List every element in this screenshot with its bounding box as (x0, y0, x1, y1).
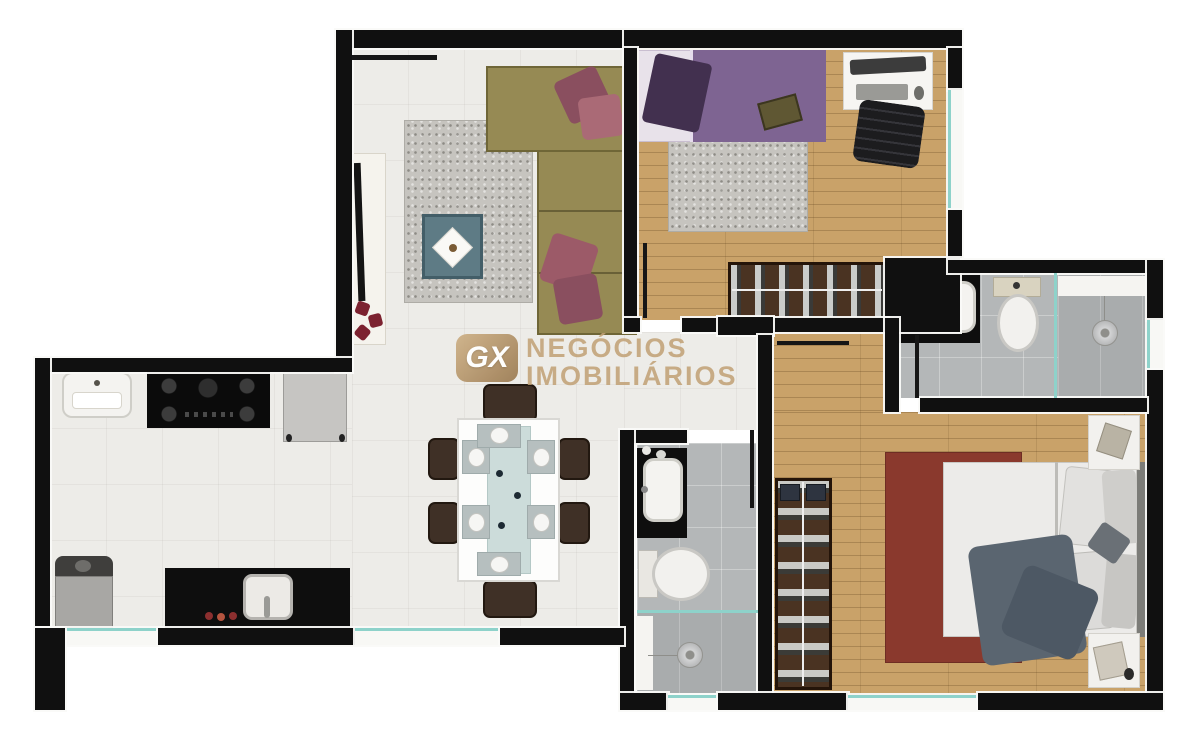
brand-name: NEGÓCIOS IMOBILIÁRIOS (526, 334, 738, 390)
wall-stub-bottom-left (35, 628, 65, 710)
dining-chair (428, 438, 460, 480)
cabinet-foot (339, 434, 345, 442)
wardrobe2-box (780, 484, 800, 501)
shower2-hose (648, 655, 680, 656)
bathroom2-door-leaf (750, 430, 754, 508)
bathroom2-sink (643, 458, 683, 522)
shower1-drain (1092, 320, 1118, 346)
wall-bedroom1-bottom (624, 318, 640, 332)
table-decor (514, 492, 521, 499)
tank-drain (94, 380, 100, 386)
bathroom2-window (668, 695, 718, 710)
master-headboard (1137, 462, 1147, 637)
wall-outer-right (1147, 370, 1163, 710)
plate (533, 513, 550, 532)
washer-lid (75, 560, 91, 572)
desk-keyboard (856, 84, 908, 100)
wall-kitchen-bottom (158, 628, 355, 645)
bath-accessory (656, 450, 666, 459)
dining-chair (428, 502, 460, 544)
wall-bottom (978, 693, 1163, 710)
decor (668, 695, 718, 698)
master-pillow (1101, 553, 1141, 630)
kitchen-faucet (264, 596, 270, 618)
wall-bedroom1-bottom (682, 318, 888, 332)
bedroom1-window (948, 90, 962, 210)
wall-bottom (620, 693, 668, 710)
wardrobe2-rail (802, 482, 804, 686)
counter-decor (229, 612, 237, 620)
brand-logo: GX (456, 334, 518, 382)
kitchen-window (50, 628, 158, 645)
wall-kitchen-bottom (500, 628, 624, 645)
apartment-floor-plan: GX NEGÓCIOS IMOBILIÁRIOS (0, 0, 1200, 744)
plate (468, 448, 485, 467)
wall-top-living (336, 30, 636, 48)
decor (848, 695, 978, 698)
brand-line1: NEGÓCIOS (526, 334, 738, 362)
bedroom1-rug (668, 140, 808, 232)
shower1-niche (1058, 276, 1146, 296)
wall-left-living (336, 30, 352, 372)
decor (1147, 320, 1150, 370)
wall-kitchen-left (35, 358, 50, 645)
kitchen-cabinet (283, 372, 347, 442)
wall-corridor-stub (718, 317, 773, 335)
decor (948, 90, 951, 210)
office-chair (852, 99, 926, 170)
watermark: GX NEGÓCIOS IMOBILIÁRIOS (456, 334, 746, 394)
sofa-cushion-line (539, 210, 635, 212)
desk-mouse (914, 86, 924, 100)
wall-living-bedroom1 (624, 48, 637, 318)
laundry-tank-basin (72, 392, 122, 409)
dining-chair (558, 502, 590, 544)
wall-bedroom1-right (948, 48, 962, 90)
decor (355, 628, 500, 631)
master-door-leaf (777, 341, 849, 345)
plate (490, 427, 509, 444)
wall-top-bedroom1 (624, 30, 962, 48)
wall-bathroom1-top (948, 260, 1163, 273)
wall-bottom (718, 693, 848, 710)
bathroom1-window (1147, 320, 1163, 370)
cabinet-foot (286, 434, 292, 442)
tray-decor (449, 244, 457, 252)
shower1-glass (1054, 273, 1057, 398)
counter-decor (205, 612, 213, 620)
dining-chair (483, 580, 537, 618)
bath-accessory (642, 446, 651, 455)
dining-chair (558, 438, 590, 480)
plate (490, 556, 509, 573)
kitchen-window (355, 628, 500, 645)
plate (533, 448, 550, 467)
bedroom1-door-leaf (643, 243, 647, 318)
wall-hall-bathroom1 (885, 318, 899, 412)
cooktop-knobs (185, 412, 233, 417)
wall-bathroom2-left (620, 430, 634, 697)
wall-kitchen-top (35, 358, 352, 372)
table-decor (498, 522, 505, 529)
cooktop (147, 372, 270, 428)
wardrobe1-rail (732, 289, 882, 291)
entry-door-leaf (352, 55, 437, 60)
bedroom1-quilt (690, 50, 826, 142)
bathroom1-door-leaf (915, 335, 919, 398)
toilet1-bowl (997, 294, 1039, 352)
shower2-bench (633, 616, 653, 690)
brand-line2: IMOBILIÁRIOS (526, 362, 738, 390)
table-decor (496, 470, 503, 477)
decor (50, 628, 158, 631)
nightstand-phone (1124, 668, 1134, 680)
toilet2-bowl (652, 547, 710, 601)
shower2-drain (677, 642, 703, 668)
bedroom1-wardrobe (728, 262, 886, 320)
shower2-glass (637, 610, 758, 613)
counter-decor (217, 613, 225, 621)
wall-hall-bathroom2 (758, 335, 772, 697)
wall-bedroom1-right (948, 210, 962, 262)
master-window (848, 695, 978, 710)
plate (468, 513, 485, 532)
toilet1-button (1013, 282, 1020, 289)
sofa-pillow (577, 93, 624, 140)
sofa-pillow (552, 273, 603, 326)
wall-outer-right (1147, 260, 1163, 320)
washing-machine (55, 576, 113, 628)
wall-bathroom1-bottom (920, 398, 1147, 412)
wardrobe2-box (806, 484, 826, 501)
faucet (641, 486, 648, 493)
